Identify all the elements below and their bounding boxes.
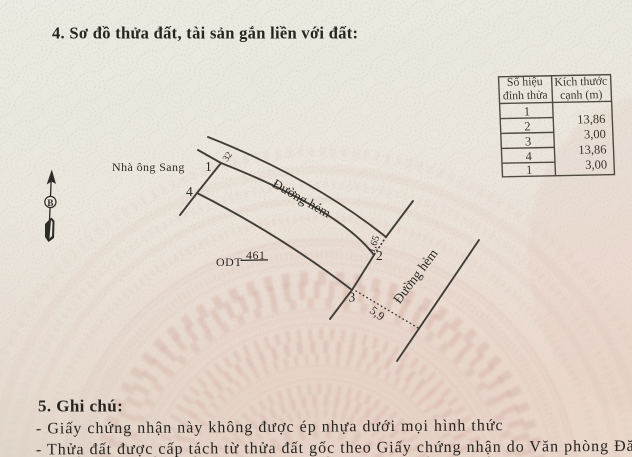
- svg-text:13,86: 13,86: [578, 142, 607, 157]
- svg-text:4: 4: [186, 184, 193, 199]
- svg-text:3: 3: [349, 290, 356, 305]
- svg-text:đỉnh thửa: đỉnh thửa: [503, 88, 549, 103]
- svg-text:cạnh (m): cạnh (m): [560, 87, 603, 102]
- svg-text:5. Ghi chú:: 5. Ghi chú:: [38, 397, 123, 416]
- svg-text:- Giấy chứng nhận này không đư: - Giấy chứng nhận này không được ép nhựa…: [36, 417, 504, 437]
- svg-text:13,86: 13,86: [577, 112, 606, 127]
- svg-text:2: 2: [524, 119, 531, 133]
- svg-text:Nhà ông Sang: Nhà ông Sang: [112, 160, 185, 174]
- svg-text:ODT: ODT: [216, 255, 242, 269]
- svg-text:Số hiệu: Số hiệu: [507, 74, 543, 89]
- svg-text:- Thửa đất được cấp tách từ th: - Thửa đất được cấp tách từ thửa đất gốc…: [36, 438, 632, 457]
- svg-text:3,00: 3,00: [584, 127, 606, 141]
- svg-text:3: 3: [525, 134, 532, 148]
- svg-text:4. Sơ đồ thửa đất, tài sản gắn: 4. Sơ đồ thửa đất, tài sản gắn liền với …: [52, 24, 358, 43]
- svg-text:1: 1: [524, 104, 531, 118]
- svg-text:3,00: 3,00: [585, 157, 607, 171]
- svg-text:1: 1: [526, 163, 533, 177]
- svg-text:1: 1: [205, 159, 212, 174]
- svg-text:B: B: [47, 198, 53, 208]
